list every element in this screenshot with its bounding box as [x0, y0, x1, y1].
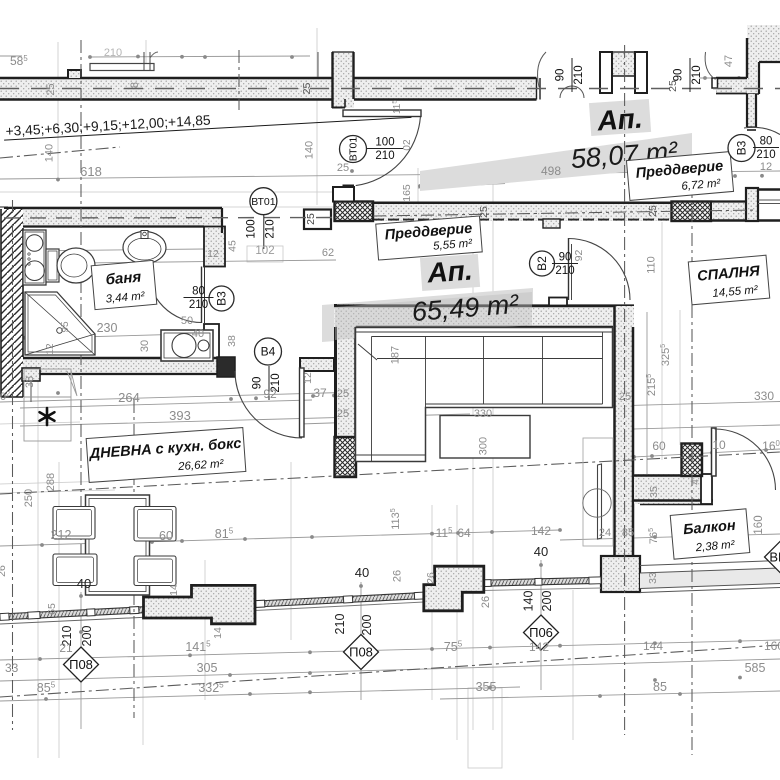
svg-text:24: 24 [599, 527, 611, 539]
svg-text:200: 200 [80, 626, 94, 647]
svg-text:В3: В3 [735, 140, 749, 155]
svg-text:330: 330 [754, 389, 774, 403]
svg-text:140: 140 [304, 141, 316, 159]
svg-text:37: 37 [313, 386, 327, 400]
svg-text:210: 210 [375, 150, 394, 162]
svg-text:305: 305 [197, 661, 218, 675]
svg-text:38: 38 [24, 376, 36, 388]
svg-text:288: 288 [45, 473, 57, 491]
svg-text:210: 210 [691, 65, 703, 84]
svg-text:12: 12 [45, 343, 56, 355]
svg-text:12: 12 [760, 161, 772, 173]
svg-text:80: 80 [192, 286, 205, 298]
svg-text:210: 210 [573, 65, 585, 84]
svg-text:21: 21 [59, 641, 73, 655]
svg-text:25: 25 [45, 83, 57, 95]
svg-text:210: 210 [333, 614, 347, 635]
svg-text:102: 102 [255, 245, 274, 257]
svg-text:10: 10 [712, 438, 726, 452]
svg-text:Ап.: Ап. [595, 102, 643, 136]
svg-text:40: 40 [77, 576, 91, 591]
svg-text:25: 25 [667, 80, 679, 92]
svg-text:212: 212 [51, 528, 72, 542]
svg-text:160: 160 [753, 515, 765, 534]
svg-text:85: 85 [622, 527, 634, 539]
svg-text:П08: П08 [349, 645, 373, 660]
svg-text:187: 187 [390, 346, 402, 364]
svg-text:250: 250 [23, 489, 35, 507]
svg-text:60: 60 [652, 439, 666, 453]
svg-text:25: 25 [478, 206, 490, 218]
svg-text:210: 210 [265, 219, 277, 238]
svg-text:144: 144 [643, 639, 663, 653]
svg-text:498: 498 [541, 164, 561, 178]
svg-text:210: 210 [756, 149, 775, 161]
svg-text:40: 40 [534, 544, 548, 559]
svg-text:140: 140 [44, 144, 56, 162]
svg-text:230: 230 [97, 321, 118, 335]
svg-text:38: 38 [226, 335, 238, 347]
svg-text:618: 618 [80, 164, 102, 179]
svg-text:330: 330 [474, 408, 492, 420]
svg-text:14: 14 [168, 584, 180, 596]
svg-text:П08: П08 [69, 657, 93, 672]
svg-text:40: 40 [355, 565, 369, 580]
svg-text:В3: В3 [215, 291, 229, 306]
svg-text:355: 355 [476, 680, 497, 694]
svg-text:95: 95 [60, 321, 71, 333]
svg-text:В4: В4 [261, 345, 276, 359]
svg-text:393: 393 [169, 408, 191, 423]
svg-text:47: 47 [723, 55, 735, 67]
svg-text:Ап.: Ап. [425, 254, 473, 288]
svg-text:02: 02 [402, 139, 413, 151]
svg-text:25: 25 [301, 83, 313, 95]
svg-text:264: 264 [118, 390, 140, 405]
svg-text:200: 200 [360, 615, 374, 636]
svg-text:45: 45 [227, 240, 239, 252]
svg-text:25: 25 [647, 205, 659, 217]
svg-text:25: 25 [337, 408, 349, 420]
svg-text:25: 25 [305, 213, 317, 225]
svg-text:92: 92 [573, 250, 585, 262]
svg-text:90: 90 [252, 377, 264, 390]
svg-text:25: 25 [337, 162, 349, 174]
svg-text:90: 90 [559, 252, 572, 264]
svg-text:35: 35 [648, 486, 660, 498]
svg-text:33: 33 [647, 572, 659, 584]
svg-text:П06: П06 [529, 625, 553, 640]
svg-text:ВП0: ВП0 [769, 550, 780, 565]
svg-text:160: 160 [764, 639, 780, 653]
svg-text:90: 90 [673, 69, 685, 82]
svg-text:200: 200 [540, 591, 554, 612]
svg-text:165: 165 [401, 184, 413, 202]
svg-text:8: 8 [129, 82, 141, 88]
svg-text:ВТ01: ВТ01 [251, 196, 276, 208]
svg-text:33: 33 [5, 661, 19, 675]
svg-text:142: 142 [529, 640, 549, 654]
svg-text:30: 30 [139, 340, 151, 352]
svg-text:210: 210 [189, 299, 208, 311]
svg-text:14: 14 [212, 627, 224, 639]
svg-text:25: 25 [337, 388, 349, 400]
svg-text:62: 62 [322, 247, 334, 259]
svg-text:100: 100 [375, 137, 394, 149]
svg-text:100: 100 [246, 219, 258, 238]
svg-text:26: 26 [425, 572, 437, 584]
svg-text:85: 85 [653, 680, 667, 694]
svg-text:баня: баня [105, 268, 142, 288]
svg-text:80: 80 [760, 136, 773, 148]
svg-text:12: 12 [207, 248, 219, 260]
svg-text:585: 585 [745, 661, 766, 675]
svg-text:26: 26 [392, 570, 404, 582]
svg-text:210: 210 [555, 265, 574, 277]
svg-text:142: 142 [531, 524, 551, 538]
svg-text:64: 64 [457, 526, 471, 540]
svg-text:4: 4 [690, 479, 702, 485]
svg-text:ВТ01: ВТ01 [348, 137, 360, 162]
svg-text:12: 12 [302, 372, 314, 384]
svg-text:65: 65 [46, 603, 58, 615]
svg-text:60: 60 [159, 529, 173, 543]
svg-text:90: 90 [555, 69, 567, 82]
svg-text:26: 26 [480, 596, 492, 608]
svg-text:В2: В2 [535, 256, 549, 271]
svg-text:140: 140 [522, 591, 536, 612]
svg-text:26: 26 [0, 565, 8, 577]
svg-text:40: 40 [192, 328, 204, 340]
svg-text:92: 92 [263, 387, 277, 401]
svg-text:210: 210 [104, 47, 122, 59]
svg-text:110: 110 [646, 256, 658, 274]
svg-text:50: 50 [181, 315, 193, 327]
svg-text:25: 25 [619, 391, 631, 403]
svg-text:300: 300 [478, 437, 490, 455]
